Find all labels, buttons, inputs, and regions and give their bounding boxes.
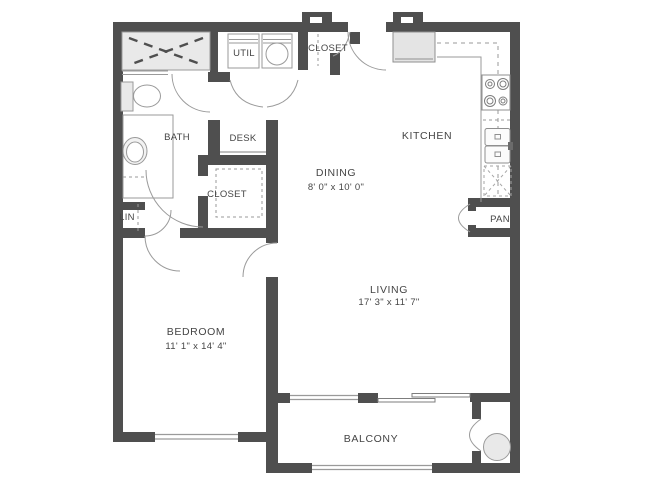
toilet-icon: [121, 82, 161, 111]
bedroom-door-arc: [243, 243, 277, 277]
entry-closet-label: CLOSET: [308, 43, 348, 54]
bifold-door-arc: [267, 80, 298, 107]
dryer-icon: [262, 34, 292, 68]
balcony-label: BALCONY: [344, 433, 398, 445]
util-label: UTIL: [233, 48, 255, 59]
bedroom-label: BEDROOM: [167, 326, 225, 338]
dining-dimensions: 8' 0" x 10' 0": [308, 182, 364, 193]
floor-plan-drawing: BATH DESK UTIL CLOSET KITCHEN DINING 8' …: [0, 0, 650, 490]
living-dimensions: 17' 3" x 11' 7": [358, 297, 419, 308]
water-heater-icon: [484, 434, 511, 461]
pantry-label: PAN: [490, 214, 510, 225]
hallway-door-arc: [145, 236, 180, 271]
bedroom-closet-label: CLOSET: [207, 189, 247, 200]
kitchen-sink-icon: [485, 129, 513, 164]
refrigerator-icon: [393, 32, 435, 62]
sliding-door: [378, 394, 470, 403]
linen-label: LIN: [119, 212, 135, 223]
walls: [113, 12, 520, 473]
bath-label: BATH: [164, 132, 190, 143]
dining-label: DINING: [316, 167, 356, 179]
bath-fixtures: [121, 32, 210, 198]
bifold-door-arc: [230, 80, 263, 107]
kitchen-label: KITCHEN: [402, 130, 452, 142]
floor-plan: BATH DESK UTIL CLOSET KITCHEN DINING 8' …: [0, 0, 650, 490]
stove-icon: [482, 75, 510, 110]
bedroom-dimensions: 11' 1" x 14' 4": [165, 341, 226, 352]
windows: [155, 393, 470, 473]
upper-cabinets-line: [437, 43, 498, 198]
room-labels: BATH DESK UTIL CLOSET KITCHEN DINING 8' …: [119, 43, 510, 445]
desk-label: DESK: [229, 133, 256, 144]
living-label: LIVING: [370, 284, 408, 296]
storage-door-arc: [470, 419, 482, 451]
bedroom-window: [155, 432, 238, 442]
balcony-railing: [312, 463, 432, 473]
living-window: [290, 393, 358, 403]
